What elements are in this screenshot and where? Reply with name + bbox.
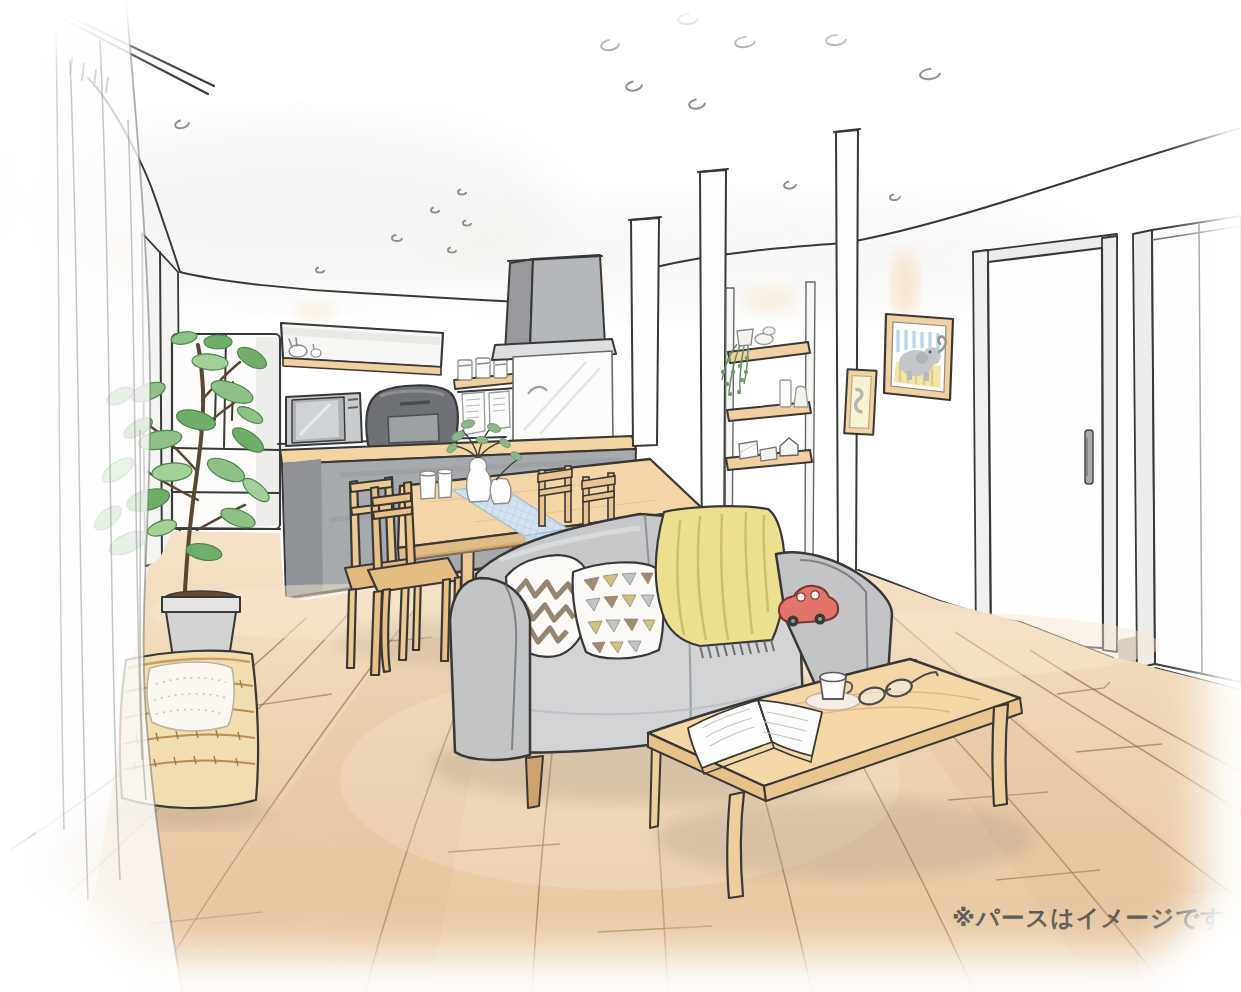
picture-frame-elephant: [884, 314, 953, 400]
glass-box-icon: [739, 441, 758, 459]
wall-tint: [744, 286, 796, 314]
sofa-left-arm: [450, 578, 530, 760]
door-handle: [1085, 430, 1093, 484]
pillar: [698, 169, 728, 562]
shelf-side-panel: [805, 282, 815, 566]
range-hood: [492, 255, 616, 360]
door-frame-right: [1102, 236, 1117, 652]
basket-cloth: [147, 662, 234, 731]
sliding-door: [973, 234, 1117, 652]
candle-icon: [780, 380, 791, 407]
wall-tint: [295, 302, 335, 322]
coffee-table-leg: [727, 792, 744, 898]
car-window: [797, 593, 805, 601]
car-window: [811, 591, 819, 599]
glass-oil-guard: [513, 351, 613, 451]
toaster-window: [388, 414, 439, 443]
picture-frame-small: [844, 369, 876, 434]
triangle-pattern-cushion: [573, 562, 664, 658]
microwave: [286, 393, 362, 446]
toaster-oven: [366, 385, 458, 449]
coffee-table-leg: [650, 742, 661, 828]
toaster-handle: [400, 402, 430, 404]
jars-icon: [458, 358, 507, 380]
sofa-leg: [526, 756, 543, 808]
box-icon: [760, 447, 777, 461]
pillar: [629, 217, 661, 446]
wall-tint: [892, 251, 918, 319]
caption-note: ※パースはイメージです: [952, 905, 1225, 931]
coffee-table-leg: [993, 704, 1009, 806]
pillar: [834, 129, 860, 580]
sketch-canvas: ※パースはイメージです: [0, 0, 1241, 992]
table-shadow: [655, 798, 1035, 878]
yellow-throw-blanket: [656, 506, 785, 658]
island-end-panel: [283, 459, 323, 599]
vase-icon: [794, 386, 808, 407]
interior-sketch-illustration: ※パースはイメージです: [0, 0, 1241, 992]
